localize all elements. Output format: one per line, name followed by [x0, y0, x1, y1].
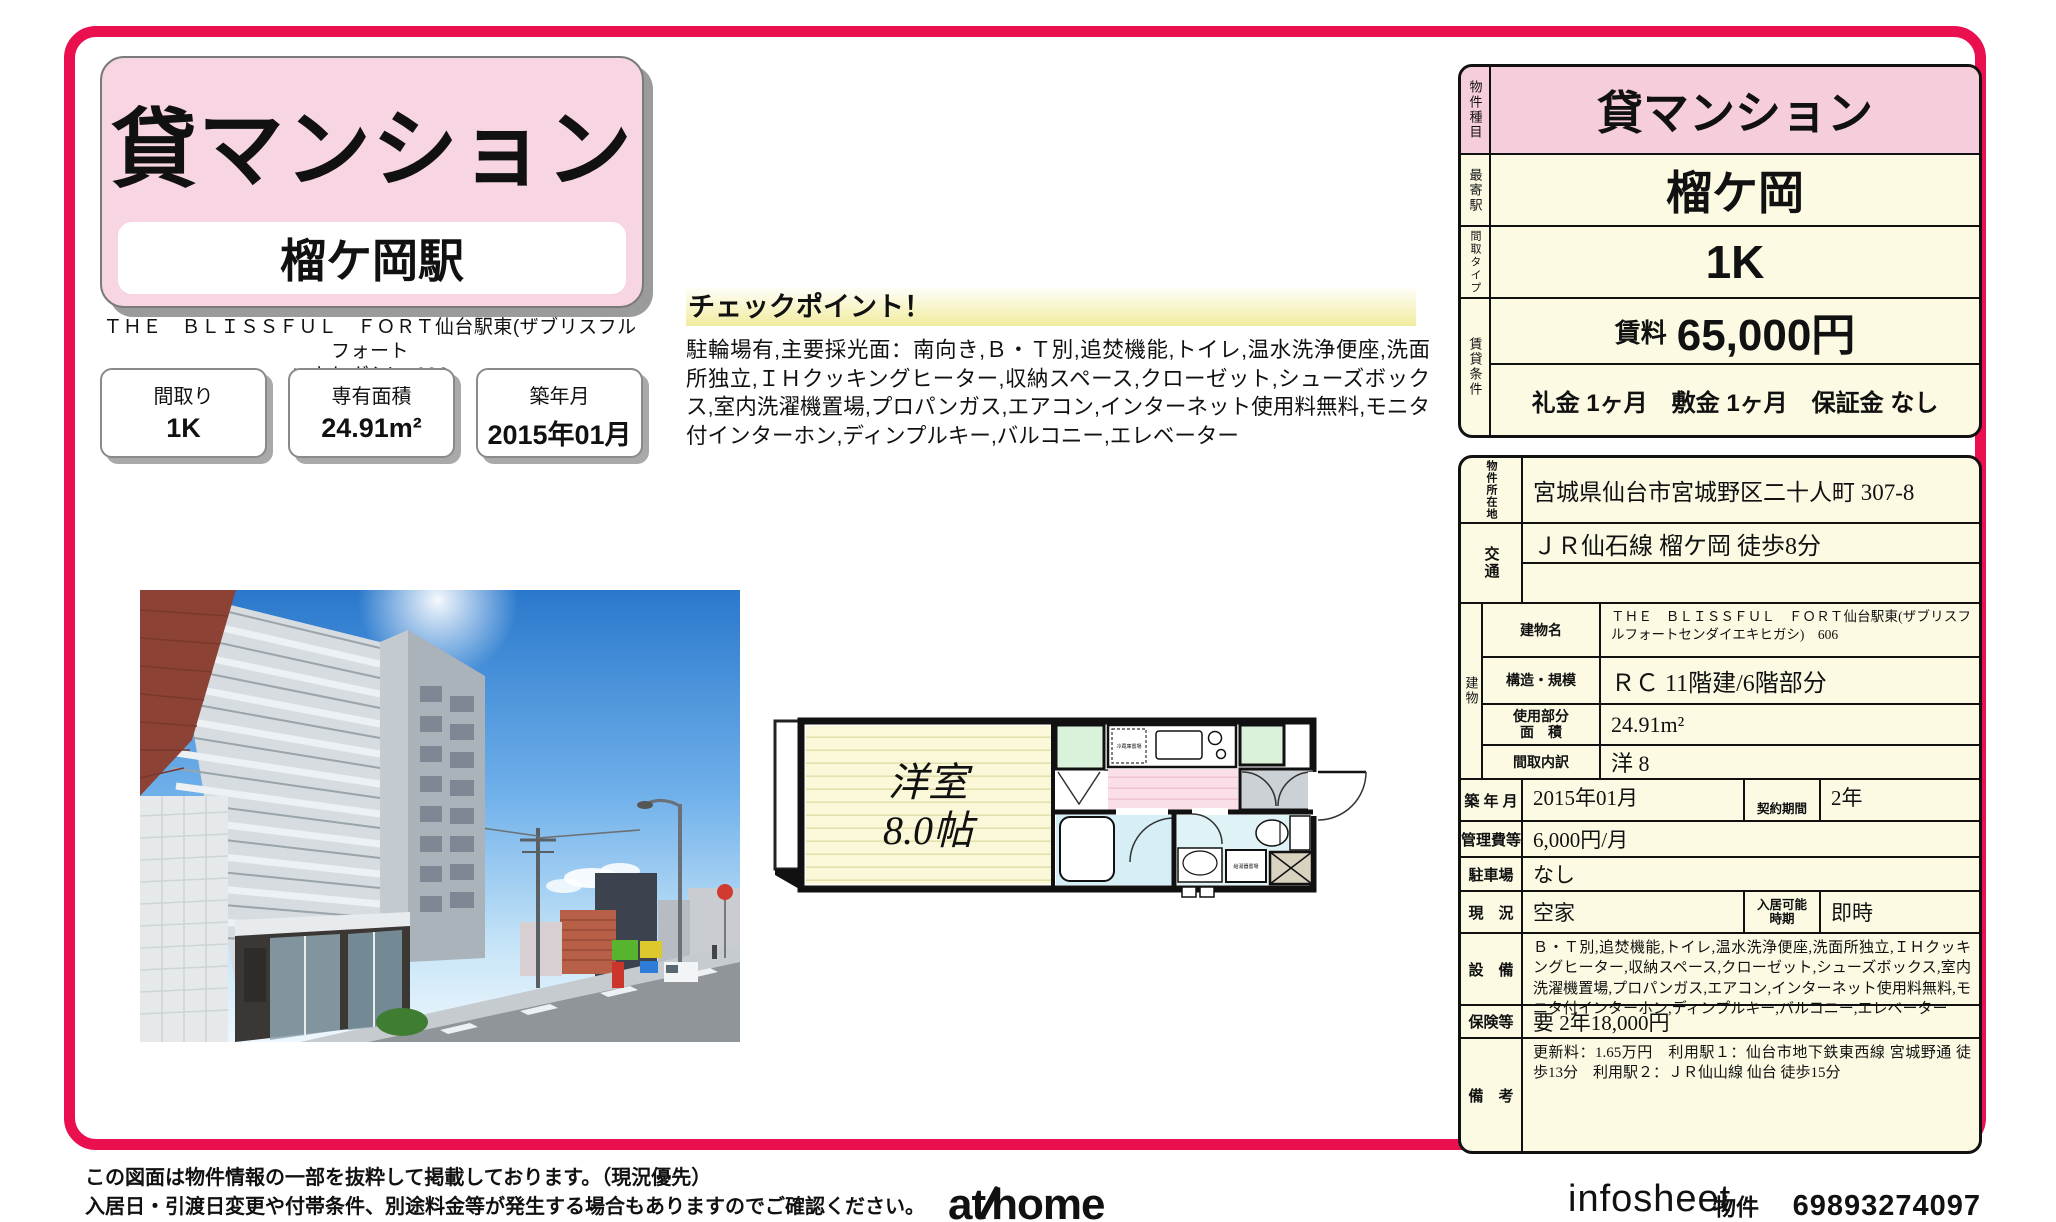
movein-value: 即時: [1821, 892, 1979, 932]
parking-label: 駐車場: [1461, 858, 1523, 890]
green-sign: [612, 940, 638, 960]
property-number-label: 物件番号: [1713, 1188, 1779, 1222]
location-value: 宮城県仙台市宮城野区二十人町 307-8: [1523, 458, 1979, 522]
balcony: [775, 721, 801, 869]
summary-terms-label: 賃貸条件: [1461, 299, 1491, 435]
closet-right: [1240, 725, 1284, 765]
spec-value: 1K: [102, 413, 265, 444]
contract-label: 契約期間: [1743, 780, 1821, 820]
fridge-label: 冷蔵庫置場: [1116, 743, 1141, 750]
notes-label: 備 考: [1461, 1039, 1523, 1151]
rent-value: 65,000円: [1677, 299, 1856, 363]
building-name-line1: ＴＨＥ ＢＬＩＳＳＦＵＬ ＦＯＲＴ仙台駅東(ザブリスフルフォート: [96, 316, 644, 364]
room-label-2: 8.0帖: [883, 808, 978, 853]
equipment-value: Ｂ・Ｔ別,追焚機能,トイレ,温水洗浄便座,洗面所独立,ＩＨクッキングヒーター,収…: [1523, 934, 1979, 1004]
infosheet-page: 貸マンション 榴ケ岡駅 ＴＨＥ ＢＬＩＳＳＦＵＬ ＦＯＲＴ仙台駅東(ザブリスフル…: [0, 0, 2056, 1222]
building-name-label: 建物名: [1483, 604, 1601, 656]
status-value: 空家: [1523, 892, 1743, 932]
toilet: [1256, 820, 1288, 846]
main-room: [806, 726, 1051, 884]
spec-label: 間取り: [102, 380, 265, 409]
property-type-card: 貸マンション 榴ケ岡駅: [100, 56, 644, 308]
toilet-tank: [1290, 816, 1310, 850]
layout-detail-label: 間取内訳: [1483, 746, 1601, 778]
area-label: 使用部分面 積: [1483, 705, 1601, 744]
built-label: 築 年 月: [1461, 780, 1523, 820]
building-photo: [140, 590, 740, 1042]
summary-table: 物件種目 貸マンション 最寄駅 榴ケ岡 間取タイプ 1K 賃貸条件 賃料 65,…: [1458, 64, 1982, 438]
layout-detail-value: 洋 8: [1601, 746, 1979, 778]
checkpoint-title: チェックポイント！: [686, 288, 1416, 326]
shrub: [376, 1008, 428, 1036]
spec-value: 24.91m²: [290, 413, 453, 444]
rent-label: 賃料: [1615, 313, 1667, 350]
building-name-value: ＴＨＥ ＢＬＩＳＳＦＵＬ ＦＯＲＴ仙台駅東(ザブリスフルフォートセンダイエキヒガ…: [1601, 604, 1979, 656]
insurance-value: 要 2年18,000円: [1523, 1006, 1979, 1037]
closet-left: [1056, 725, 1104, 769]
fee-label: 管理費等: [1461, 822, 1523, 856]
access-value-1: ＪＲ仙石線 榴ケ岡 徒歩8分: [1523, 524, 1979, 564]
fee-value: 6,000円/月: [1523, 822, 1979, 856]
kitchen-floor: [1108, 769, 1238, 810]
spec-label: 築年月: [478, 380, 641, 409]
building-group-label: 建物: [1461, 604, 1483, 778]
spec-box-layout: 間取り 1K: [100, 368, 267, 458]
vanity: [1178, 848, 1222, 882]
athome-logo: at home: [948, 1180, 1104, 1222]
built-value: 2015年01月: [1523, 780, 1743, 820]
property-number-value: 69893274097: [1793, 1190, 1981, 1222]
spec-value: 2015年01月: [478, 413, 641, 452]
equipment-label: 設 備: [1461, 934, 1523, 1004]
summary-type-value: 貸マンション: [1491, 67, 1979, 153]
infosheet-label: infosheet: [1568, 1178, 1731, 1221]
terms-value: 礼金 1ヶ月 敷金 1ヶ月 保証金 なし: [1491, 365, 1979, 435]
detail-table: 物件所在地 宮城県仙台市宮城野区二十人町 307-8 交通 ＪＲ仙石線 榴ケ岡 …: [1458, 455, 1982, 1154]
floor-plan: 洋室 8.0帖 冷蔵庫置場: [772, 712, 1376, 908]
property-type-title: 貸マンション: [102, 60, 642, 222]
status-label: 現 況: [1461, 892, 1523, 932]
utility-label: 給湯器置場: [1233, 863, 1258, 870]
contract-value: 2年: [1821, 780, 1979, 820]
summary-type-label: 物件種目: [1461, 67, 1491, 153]
spec-box-area: 専有面積 24.91m²: [288, 368, 455, 458]
structure-value: ＲＣ 11階建/6階部分: [1601, 658, 1979, 703]
sink: [1156, 731, 1202, 759]
footer-note: この図面は物件情報の一部を抜粋して掲載しております。（現況優先） 入居日・引渡日…: [85, 1164, 925, 1222]
footer-note-line2: 入居日・引渡日変更や付帯条件、別途料金等が発生する場合もありますのでご確認くださ…: [85, 1193, 925, 1222]
spec-label: 専有面積: [290, 380, 453, 409]
summary-station-value: 榴ケ岡: [1491, 155, 1979, 225]
summary-layout-label: 間取タイプ: [1461, 227, 1491, 297]
spec-box-built: 築年月 2015年01月: [476, 368, 643, 458]
entry: [1240, 769, 1314, 810]
checkpoint-body: 駐輪場有,主要採光面：南向き,Ｂ・Ｔ別,追焚機能,トイレ,温水洗浄便座,洗面所独…: [686, 336, 1430, 450]
summary-station-label: 最寄駅: [1461, 155, 1491, 225]
area-value: 24.91m²: [1601, 705, 1979, 744]
summary-layout-value: 1K: [1491, 227, 1979, 297]
access-value-2: [1523, 564, 1979, 602]
location-label: 物件所在地: [1461, 458, 1523, 522]
parking-value: なし: [1523, 858, 1979, 890]
room-label-1: 洋室: [888, 760, 973, 805]
insurance-label: 保険等: [1461, 1006, 1523, 1037]
property-number: 物件番号 69893274097: [1713, 1188, 1981, 1222]
structure-label: 構造・規模: [1483, 658, 1601, 703]
access-label: 交通: [1461, 524, 1523, 602]
notes-value: 更新料：1.65万円 利用駅１：仙台市地下鉄東西線 宮城野通 徒歩13分 利用駅…: [1523, 1039, 1979, 1151]
bathtub: [1060, 817, 1114, 881]
pedestrian: [712, 945, 717, 959]
movein-label: 入居可能時期: [1743, 892, 1821, 932]
station-badge: 榴ケ岡駅: [118, 222, 626, 294]
footer-note-line1: この図面は物件情報の一部を抜粋して掲載しております。（現況優先）: [85, 1164, 925, 1193]
